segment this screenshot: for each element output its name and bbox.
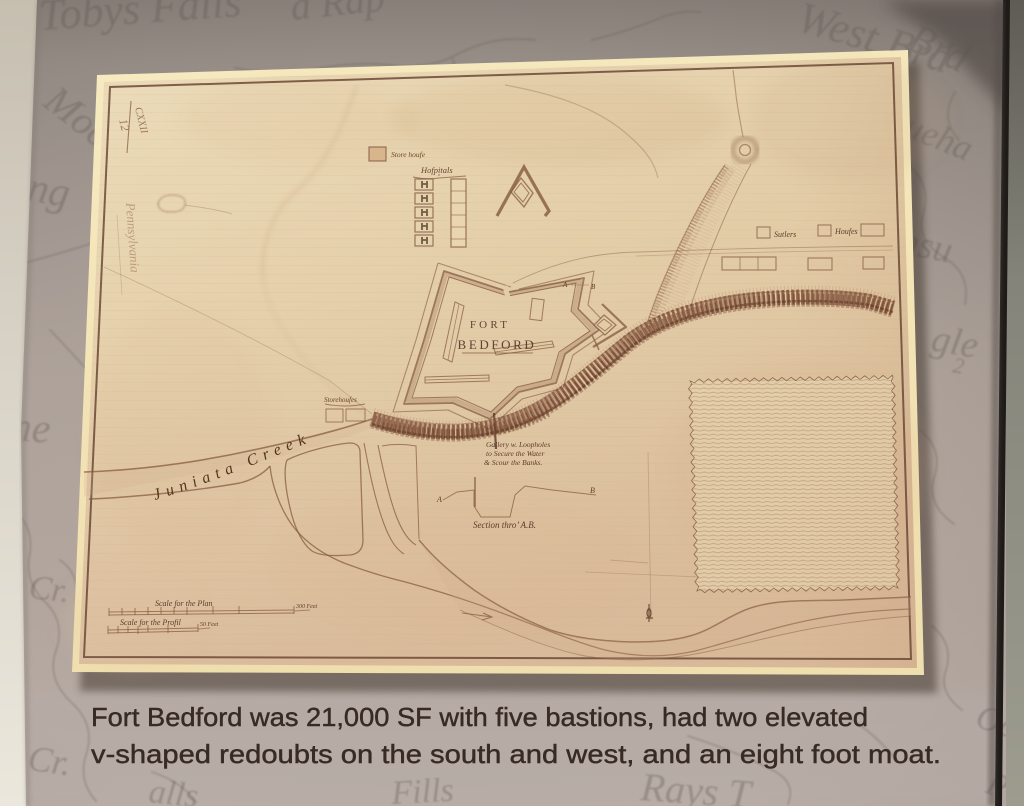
svg-text:A: A <box>436 495 442 504</box>
svg-text:BEDFORD: BEDFORD <box>458 337 537 352</box>
svg-text:B: B <box>590 486 595 495</box>
svg-text:to Secure the Water: to Secure the Water <box>486 449 544 458</box>
svg-text:A: A <box>562 281 568 289</box>
svg-text:Scale for the Plan: Scale for the Plan <box>155 599 213 608</box>
svg-text:Rays T: Rays T <box>638 764 755 806</box>
svg-text:Gallery w. Loopholes: Gallery w. Loopholes <box>486 440 550 449</box>
svg-text:Scale for the Profil: Scale for the Profil <box>120 618 182 627</box>
svg-text:FORT: FORT <box>470 319 510 331</box>
svg-text:Sutlers: Sutlers <box>774 230 796 239</box>
svg-text:Hofpitals: Hofpitals <box>420 165 453 175</box>
svg-text:v-shaped redoubts on the south: v-shaped redoubts on the south and west,… <box>91 739 941 769</box>
svg-text:alls: alls <box>147 773 200 806</box>
svg-text:& Scour the Banks.: & Scour the Banks. <box>484 458 542 467</box>
svg-text:300 Feet: 300 Feet <box>295 604 317 610</box>
svg-text:Fort Bedford was 21,000 SF wit: Fort Bedford was 21,000 SF with five bas… <box>91 702 868 732</box>
svg-text:50 Feet: 50 Feet <box>200 622 218 628</box>
svg-text:Store houfe: Store houfe <box>391 150 426 159</box>
svg-text:B: B <box>591 283 596 291</box>
svg-text:Storehoufes: Storehoufes <box>324 396 357 404</box>
svg-text:Fills: Fills <box>389 772 454 806</box>
svg-text:Section thro’ A.B.: Section thro’ A.B. <box>473 520 536 530</box>
svg-text:Houfes: Houfes <box>834 227 858 236</box>
